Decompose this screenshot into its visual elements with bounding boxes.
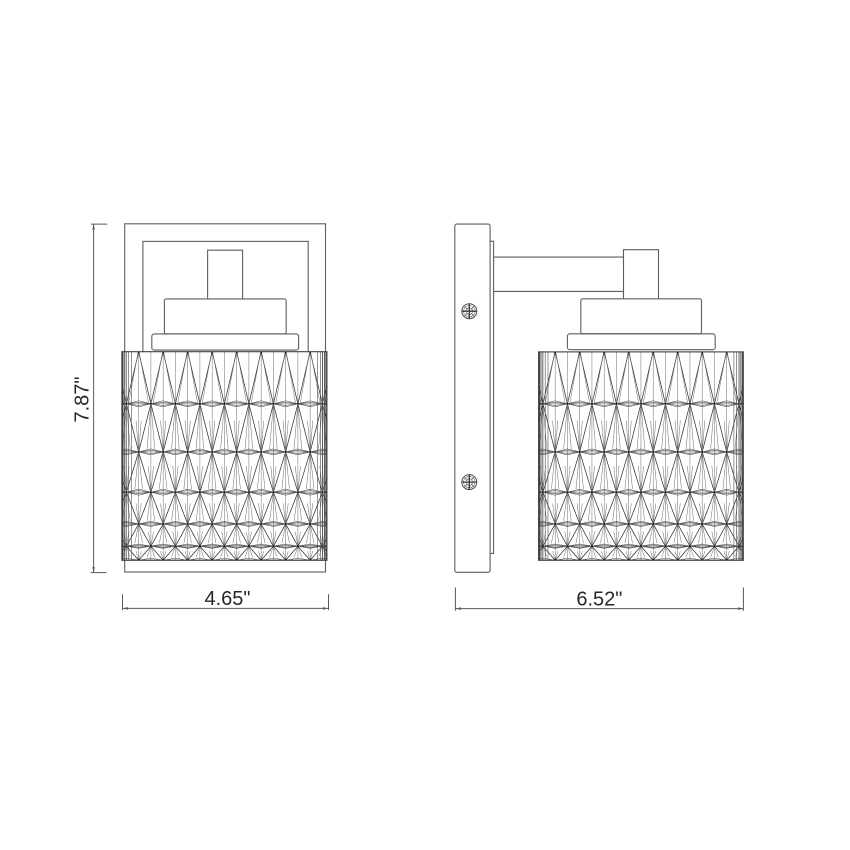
svg-text:4.65": 4.65" [204,588,250,610]
svg-text:6.52": 6.52" [576,588,622,610]
svg-text:7.87": 7.87" [72,376,94,422]
